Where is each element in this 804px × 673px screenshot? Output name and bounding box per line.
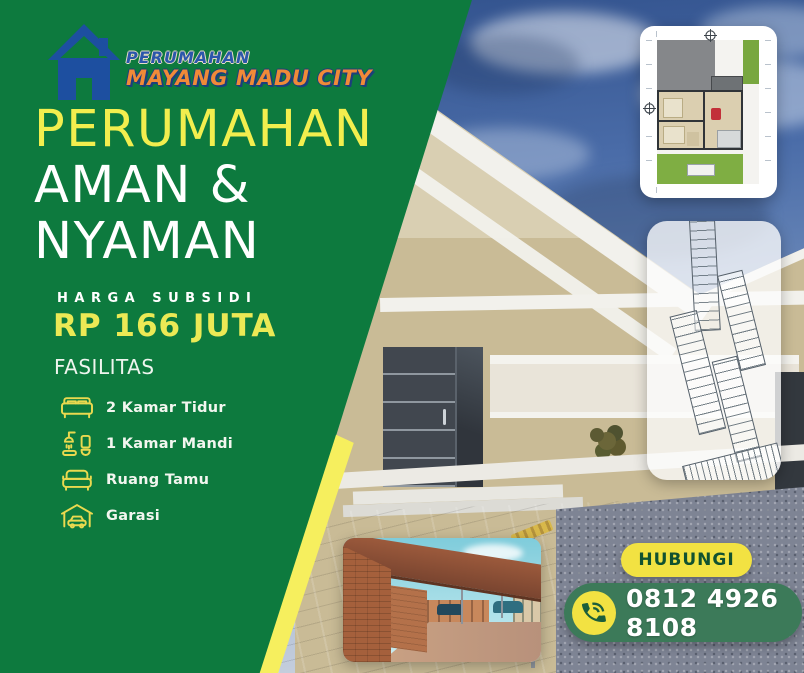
headline-line2: AMAN &: [34, 158, 374, 214]
house-icon: [44, 20, 124, 102]
garage-icon: [58, 501, 96, 531]
phone-number: 0812 4926 8108: [626, 584, 802, 642]
headline-line1: PERUMAHAN: [34, 102, 374, 158]
door-handle: [443, 409, 446, 425]
site-plan-thumbnail: [647, 221, 781, 480]
sofa-icon: [58, 465, 96, 495]
bath-symbol: [717, 130, 741, 148]
gravel-area: [556, 487, 804, 673]
bath-icon: [58, 429, 96, 459]
headline: PERUMAHAN AMAN & NYAMAN: [34, 102, 374, 270]
facility-label: Garasi: [106, 508, 160, 524]
car: [437, 604, 463, 615]
car: [493, 601, 523, 613]
bed-icon: [58, 393, 96, 423]
dimension-lines: [656, 187, 662, 193]
plan-label-box: [687, 164, 715, 176]
facility-label: 2 Kamar Tidur: [106, 400, 226, 416]
price-value: RP 166 JUTA: [53, 308, 276, 344]
price-label: HARGA SUBSIDI: [57, 291, 257, 306]
compass-icon: [643, 102, 656, 115]
entrance-gate-thumbnail: [343, 538, 541, 662]
floor-plan-roof: [657, 40, 715, 90]
plant: [590, 428, 604, 442]
closet-symbol: [687, 132, 699, 146]
floor-plan-drawing: [657, 40, 759, 184]
wall-line: [703, 92, 705, 148]
logo: PERUMAHAN MAYANG MADU CITY: [44, 20, 372, 102]
facility-label: 1 Kamar Mandi: [106, 436, 233, 452]
logo-text: PERUMAHAN MAYANG MADU CITY: [126, 50, 372, 89]
facilities-title: FASILITAS: [54, 355, 155, 379]
list-item: 2 Kamar Tidur: [58, 390, 233, 426]
dimension-lines: [765, 40, 771, 184]
facility-label: Ruang Tamu: [106, 472, 209, 488]
floor-plan-rooms: [657, 90, 743, 150]
logo-line1: PERUMAHAN: [126, 50, 372, 67]
phone-icon-circle: [572, 591, 616, 635]
floor-plan-lawn: [657, 154, 743, 184]
bed-symbol: [663, 126, 685, 144]
list-item: Ruang Tamu: [58, 462, 233, 498]
bed-symbol: [663, 98, 683, 118]
floor-plan-thumbnail: [640, 26, 777, 198]
hubungi-button[interactable]: HUBUNGI: [621, 543, 752, 577]
plot-row: [682, 442, 781, 480]
site-plan-drawing: [647, 221, 781, 480]
flyer-canvas: PERUMAHAN MAYANG MADU CITY PERUMAHAN AMA…: [0, 0, 804, 673]
phone-icon: [578, 596, 610, 628]
gate-brick-wall: [391, 585, 427, 652]
furniture-symbol: [711, 108, 721, 120]
plot-row: [717, 270, 766, 371]
list-item: Garasi: [58, 498, 233, 534]
compass-icon: [704, 29, 717, 42]
logo-line2: MAYANG MADU CITY: [126, 67, 372, 89]
dimension-lines: [656, 31, 662, 37]
phone-pill[interactable]: 0812 4926 8108: [564, 583, 802, 642]
facilities-list: 2 Kamar Tidur 1 Kamar Mandi Ruang Tamu: [58, 390, 233, 534]
wall-line: [659, 120, 703, 122]
headline-line3: NYAMAN: [34, 214, 374, 270]
list-item: 1 Kamar Mandi: [58, 426, 233, 462]
floor-plan-garden: [743, 40, 759, 84]
